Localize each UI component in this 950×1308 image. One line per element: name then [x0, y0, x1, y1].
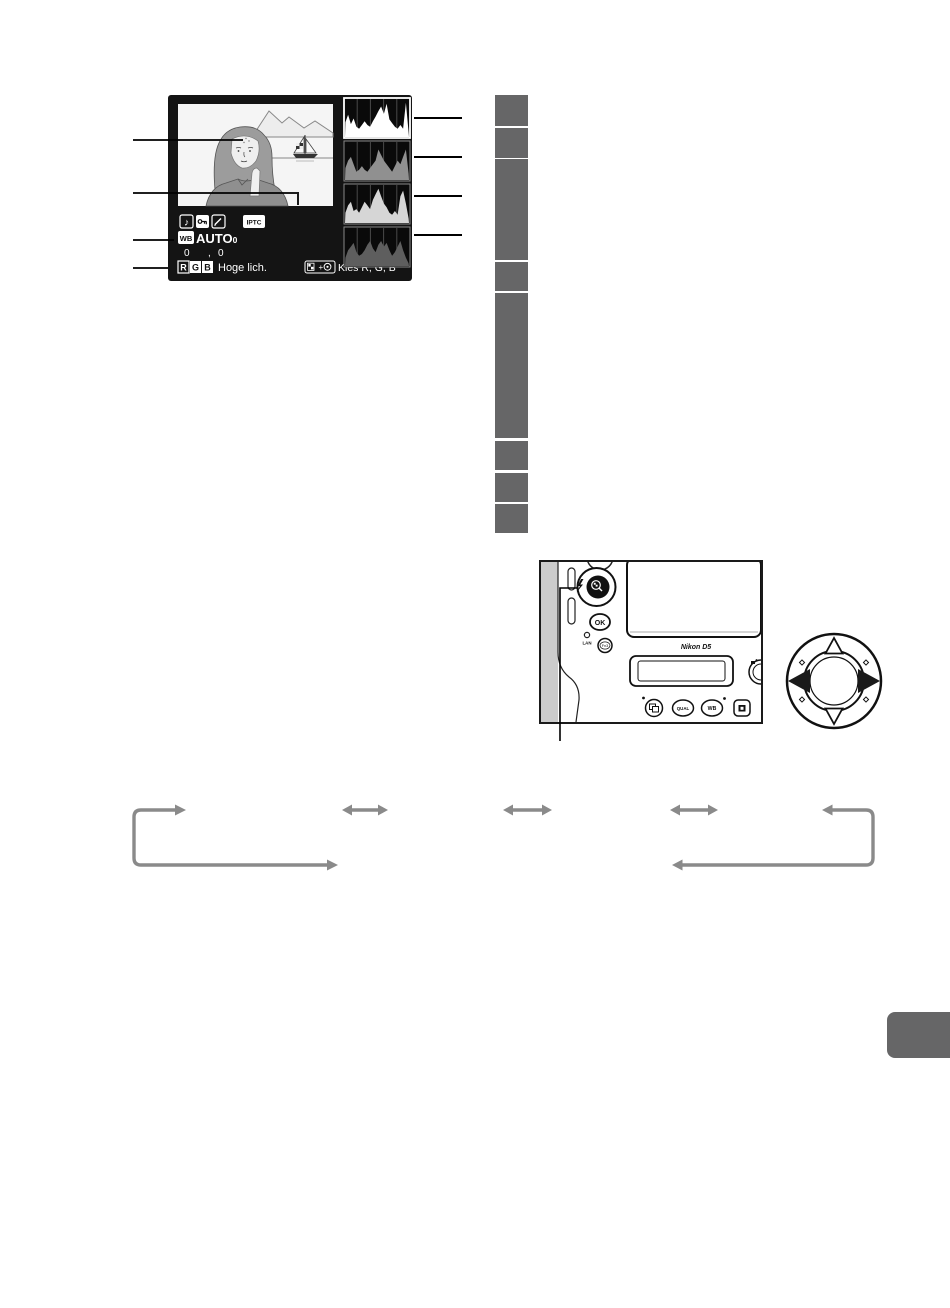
- cycle-start-arrow: [134, 810, 328, 865]
- svg-text:Fn3: Fn3: [602, 644, 609, 648]
- page-cycle-arrows: [134, 805, 873, 871]
- svg-text:WB: WB: [180, 234, 193, 243]
- iptc-badge: IPTC: [243, 215, 265, 228]
- histogram-blue: [344, 227, 410, 267]
- svg-text:QUAL: QUAL: [677, 706, 690, 711]
- svg-text:G: G: [192, 263, 199, 273]
- svg-text:+: +: [319, 263, 324, 272]
- lan-label: LAN: [582, 641, 591, 646]
- svg-text:AUTO0: AUTO0: [196, 231, 238, 246]
- mode-label: Hoge lich.: [218, 262, 267, 274]
- rgb-mode-row: R G B Hoge lich.: [178, 261, 267, 274]
- redacted-text-block: [495, 504, 528, 533]
- camera-display: ♪ IPTC: [168, 95, 412, 281]
- redacted-text-block: [495, 159, 528, 260]
- svg-text:♪: ♪: [184, 218, 189, 229]
- redacted-text-block: [495, 473, 528, 502]
- cycle-return-arrow: [682, 810, 873, 865]
- histogram-callout-lines: [414, 118, 462, 235]
- histogram-green: [344, 184, 410, 224]
- image-preview: [178, 104, 333, 206]
- fn3-button: Fn3: [598, 639, 612, 653]
- redacted-text-block: [495, 293, 528, 438]
- svg-text:0: 0: [218, 248, 224, 259]
- protect-key-icon: [196, 215, 209, 228]
- redacted-text-block: [495, 441, 528, 470]
- white-balance-row: WB AUTO0: [178, 231, 238, 246]
- monitor: [627, 558, 761, 637]
- thumbnail-zoom-out-button: [587, 576, 610, 599]
- svg-text:OK: OK: [595, 620, 606, 627]
- chapter-tab: [887, 1012, 950, 1058]
- svg-text:B: B: [204, 263, 211, 273]
- histogram-rgb-luminance: [344, 98, 410, 138]
- metering-button: [734, 700, 750, 716]
- lan-lamp: [584, 632, 589, 637]
- ok-button: OK: [590, 614, 610, 630]
- svg-text:WB: WB: [708, 706, 717, 712]
- qual-button: QUAL: [673, 700, 694, 716]
- wb-value: AUTO: [196, 231, 233, 246]
- svg-text:0: 0: [184, 248, 190, 259]
- camera-side-panel: [541, 562, 558, 722]
- svg-text:IPTC: IPTC: [247, 220, 262, 227]
- camera-back-diagram: OK LAN Fn3 Nikon D5: [535, 556, 767, 746]
- svg-text:,: ,: [208, 248, 211, 259]
- redacted-text-block: [495, 128, 528, 158]
- nikon-d5-logo: Nikon D5: [681, 644, 711, 651]
- svg-text:R: R: [180, 263, 187, 273]
- multi-selector: [781, 628, 887, 734]
- wb-value-sub: 0: [233, 235, 238, 245]
- redacted-text-block: [495, 262, 528, 291]
- manual-page: ♪ IPTC: [0, 0, 950, 1308]
- redacted-text-block: [495, 95, 528, 126]
- histogram-red: [344, 141, 410, 181]
